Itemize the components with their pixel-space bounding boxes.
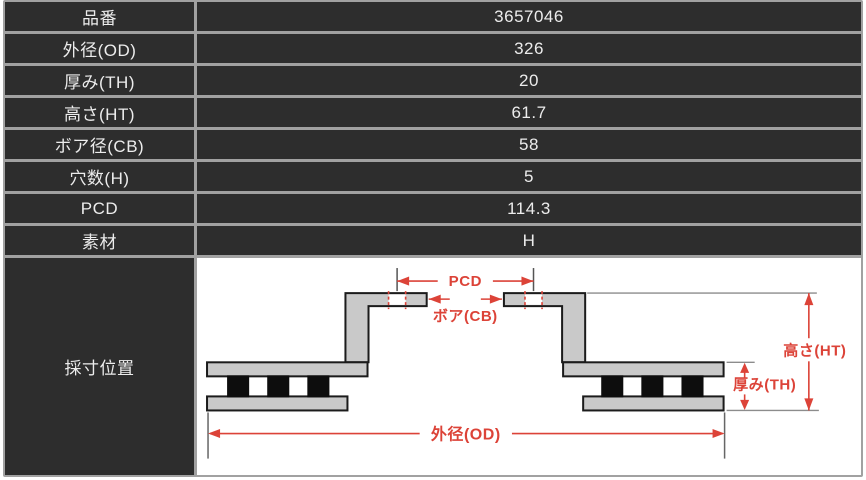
disc-top-plate-right bbox=[563, 362, 723, 376]
value-thickness: 20 bbox=[197, 66, 861, 95]
disc-bottom-plate-right bbox=[583, 396, 723, 410]
pcd-arrow-left bbox=[397, 277, 409, 286]
height-arrow-down bbox=[804, 398, 813, 410]
dim-label-outer-diameter: 外径(OD) bbox=[431, 425, 501, 444]
label-pcd: PCD bbox=[5, 194, 194, 223]
bore-arrow-right bbox=[490, 295, 502, 304]
thickness-arrow-down bbox=[740, 400, 749, 410]
value-material: H bbox=[197, 226, 861, 255]
dim-label-bore: ボア(CB) bbox=[433, 308, 498, 325]
value-height: 61.7 bbox=[197, 98, 861, 127]
value-part-number: 3657046 bbox=[197, 2, 861, 31]
thickness-arrow-up bbox=[740, 363, 749, 373]
hat-left-section bbox=[345, 293, 426, 362]
dim-label-pcd: PCD bbox=[449, 273, 482, 290]
bolt-hole-left bbox=[389, 294, 406, 304]
value-pcd: 114.3 bbox=[197, 194, 861, 223]
label-outer-diameter: 外径(OD) bbox=[5, 34, 194, 63]
label-height: 高さ(HT) bbox=[5, 98, 194, 127]
label-measurement-positions: 採寸位置 bbox=[5, 258, 194, 475]
height-arrow-up bbox=[804, 293, 813, 305]
label-hole-count: 穴数(H) bbox=[5, 162, 194, 191]
od-arrow-left bbox=[208, 429, 220, 438]
od-arrow-right bbox=[713, 429, 725, 438]
disc-bottom-plate-left bbox=[207, 396, 347, 410]
bore-arrow-left bbox=[429, 295, 441, 304]
label-bore: ボア径(CB) bbox=[5, 130, 194, 159]
spec-table: 品番 3657046 外径(OD) 326 厚み(TH) 20 高さ(HT) 6… bbox=[3, 0, 863, 477]
label-part-number: 品番 bbox=[5, 2, 194, 31]
dim-label-height: 高さ(HT) bbox=[783, 341, 846, 359]
bolt-hole-right bbox=[525, 294, 542, 304]
measurement-diagram-cell: PCD ボア(CB) 高さ(HT) 厚み bbox=[197, 258, 861, 475]
value-bore: 58 bbox=[197, 130, 861, 159]
pcd-arrow-right bbox=[521, 277, 533, 286]
value-hole-count: 5 bbox=[197, 162, 861, 191]
label-material: 素材 bbox=[5, 226, 194, 255]
value-outer-diameter: 326 bbox=[197, 34, 861, 63]
vent-ribs bbox=[227, 375, 703, 397]
disc-top-plate-left bbox=[207, 362, 367, 376]
label-thickness: 厚み(TH) bbox=[5, 66, 194, 95]
dim-label-thickness: 厚み(TH) bbox=[733, 376, 796, 393]
hat-right-section bbox=[504, 293, 585, 362]
rotor-cross-section-diagram: PCD ボア(CB) 高さ(HT) 厚み bbox=[197, 258, 861, 475]
